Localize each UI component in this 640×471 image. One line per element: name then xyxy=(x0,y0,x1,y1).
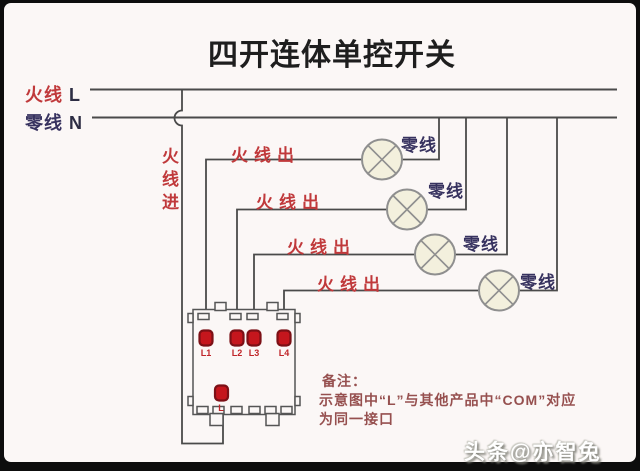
live-out-label-2: 火线出 xyxy=(256,188,325,213)
terminal-common-L xyxy=(215,386,228,401)
notes-line-2: 为同一接口 xyxy=(319,409,394,429)
notes-heading: 备注： xyxy=(322,371,367,391)
diagram-image: 四开连体单控开关 火线L 零线N 火线进 火线出 火线出 火线出 火线出 零线 … xyxy=(0,0,640,471)
diagram-background: 四开连体单控开关 火线L 零线N 火线进 火线出 火线出 火线出 火线出 零线 … xyxy=(4,3,636,462)
feed-in-label: 火线进 xyxy=(156,147,181,216)
terminal-L3 xyxy=(248,331,261,346)
terminal-label-L4: L4 xyxy=(276,348,292,358)
neutral-bus-label-text: 零线 xyxy=(25,113,63,133)
lamp-icon xyxy=(415,235,455,275)
watermark: 头条@亦智兔 xyxy=(464,436,601,466)
neutral-label-1: 零线 xyxy=(401,131,437,156)
neutral-bus-letter: N xyxy=(69,113,83,133)
hot-bus-letter: L xyxy=(69,85,81,105)
live-out-label-4: 火线出 xyxy=(317,270,386,295)
switched-wire-4 xyxy=(284,291,480,331)
lamp-icon xyxy=(387,190,427,230)
neutral-label-3: 零线 xyxy=(463,230,499,255)
hot-bus-label: 火线L xyxy=(25,81,81,107)
live-out-label-1: 火线出 xyxy=(231,141,300,166)
terminal-label-L3: L3 xyxy=(246,348,262,358)
terminal-label-L1: L1 xyxy=(198,348,214,358)
neutral-drop-wire-4 xyxy=(518,118,557,291)
lamp-icon xyxy=(479,271,519,311)
neutral-bus-label: 零线N xyxy=(25,109,83,135)
notes-line-1: 示意图中“L”与其他产品中“COM”对应 xyxy=(319,390,576,410)
live-out-label-3: 火线出 xyxy=(287,233,356,258)
terminal-L2 xyxy=(231,331,244,346)
terminal-label-L2: L2 xyxy=(229,348,245,358)
terminal-label-common: L xyxy=(213,403,229,413)
neutral-label-2: 零线 xyxy=(428,177,464,202)
neutral-label-4: 零线 xyxy=(520,268,556,293)
terminal-L1 xyxy=(200,331,213,346)
page-title: 四开连体单控开关 xyxy=(208,30,456,74)
hot-bus-label-text: 火线 xyxy=(25,85,63,105)
lamp-icon xyxy=(362,140,402,180)
terminal-L4 xyxy=(278,331,291,346)
switch-plate xyxy=(188,303,300,426)
